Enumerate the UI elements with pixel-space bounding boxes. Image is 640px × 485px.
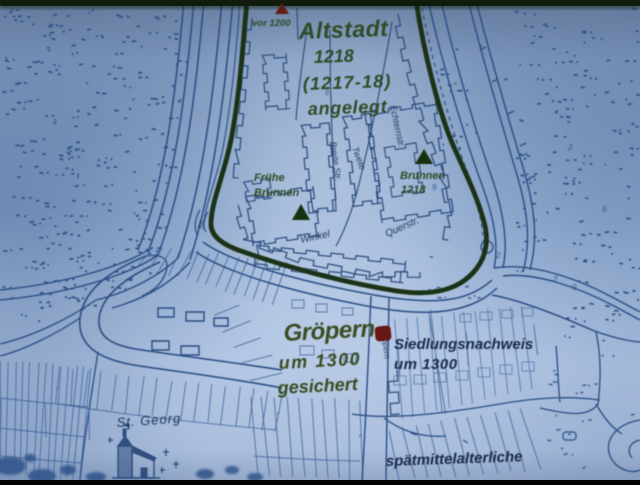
svg-text:Frühe: Frühe <box>254 172 285 184</box>
svg-text:2: 2 <box>567 143 573 152</box>
svg-text:2: 2 <box>552 275 558 284</box>
svg-text:Gröpern: Gröpern <box>283 315 375 347</box>
svg-text:2: 2 <box>495 251 501 260</box>
svg-text:1218: 1218 <box>401 184 426 196</box>
svg-text:vor 1200: vor 1200 <box>252 18 291 29</box>
svg-text:Siedlungsnachweis: Siedlungsnachweis <box>394 336 533 353</box>
svg-text:1218: 1218 <box>313 46 354 67</box>
svg-text:9: 9 <box>572 283 577 292</box>
svg-text:um 1300: um 1300 <box>394 356 458 373</box>
svg-text:Brunnen: Brunnen <box>400 170 446 182</box>
svg-text:angelegt: angelegt <box>307 96 388 119</box>
svg-text:Brunnen: Brunnen <box>254 187 300 199</box>
svg-text:9: 9 <box>432 183 437 192</box>
svg-text:9: 9 <box>602 205 607 214</box>
svg-text:Altstadt: Altstadt <box>297 15 389 44</box>
svg-text:(1217-18): (1217-18) <box>302 71 392 94</box>
